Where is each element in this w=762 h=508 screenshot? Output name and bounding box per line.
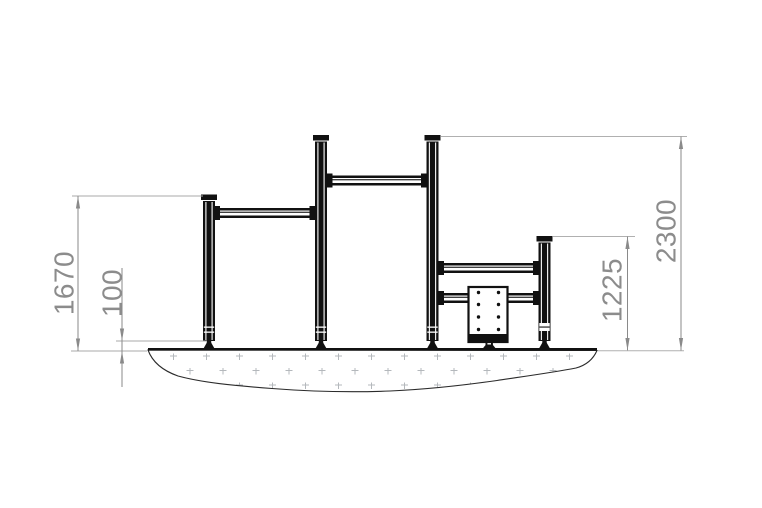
drawing-page: 1670 100 1225 2300 (0, 0, 762, 508)
panel-board (469, 287, 508, 342)
panel-dot (497, 303, 500, 306)
post-tube (315, 142, 327, 342)
post-joint (204, 327, 214, 328)
post-joint (427, 327, 437, 328)
post-tube-highlight (205, 202, 206, 340)
crossbar-low-left (209, 206, 321, 220)
post-1-left (201, 195, 217, 349)
arrowhead-down (625, 338, 629, 351)
post-joint (427, 332, 437, 333)
post-joint (204, 332, 214, 333)
bar-highlight (321, 180, 433, 183)
post-joint-line (539, 327, 549, 328)
arrowhead-up (679, 137, 683, 150)
ground-section (148, 348, 597, 392)
post-anchor (316, 342, 327, 349)
equipment-structure (201, 135, 553, 349)
bar-highlight (321, 178, 433, 179)
panel-dot (477, 291, 480, 294)
ground-section-blob (148, 350, 597, 392)
post-cap (425, 135, 441, 141)
post-tube-highlight (212, 202, 213, 340)
dimension-label: 1670 (49, 251, 80, 315)
panel-dot (497, 328, 500, 331)
bar-clamp (327, 174, 333, 188)
panel-dot (477, 328, 480, 331)
bar-clamp (533, 261, 539, 275)
dimension-label: 1225 (597, 258, 628, 322)
post-joint (316, 327, 326, 328)
crossbar-high (321, 174, 433, 188)
arrowhead-up (625, 237, 629, 250)
arrowhead-up (76, 196, 80, 209)
post-anchor (204, 342, 215, 349)
panel-dot (497, 315, 500, 318)
dimension-label: 100 (97, 269, 128, 317)
dimension-1225: 1225 (553, 237, 635, 351)
bar-highlight (209, 211, 321, 212)
bar-clamp (421, 174, 427, 188)
crossbar-right-upper (433, 261, 545, 275)
panel-dot (497, 291, 500, 294)
activity-panel (469, 287, 508, 349)
post-4-right (537, 236, 553, 349)
bar-clamp (439, 261, 445, 275)
post-tube (203, 201, 215, 341)
bar-highlight (433, 266, 545, 267)
elevation-drawing: 1670 100 1225 2300 (0, 0, 762, 508)
post-2-tall (313, 135, 329, 349)
post-tube-highlight (435, 143, 436, 341)
bar-clamp (439, 291, 445, 305)
post-joint (316, 332, 326, 333)
arrowhead-down (120, 329, 124, 342)
post-anchor (539, 342, 550, 349)
post-cap (537, 236, 553, 242)
bar-highlight (209, 213, 321, 216)
ground-surface-line (148, 348, 597, 351)
bar-clamp (533, 291, 539, 305)
panel-anchor (483, 345, 497, 349)
post-cap (201, 195, 217, 201)
bar-clamp (215, 206, 221, 220)
post-3-tall (425, 135, 441, 349)
panel-base-band (469, 334, 508, 342)
post-anchor (427, 342, 438, 349)
post-tube-highlight (317, 143, 318, 341)
panel-dot (477, 315, 480, 318)
bar-highlight (433, 268, 545, 271)
dimension-label: 2300 (651, 199, 682, 263)
post-tube-highlight (324, 143, 325, 341)
post-tube-highlight (429, 143, 430, 341)
arrowhead-up (120, 351, 124, 364)
panel-dot (477, 303, 480, 306)
arrowhead-down (679, 338, 683, 351)
arrowhead-down (76, 339, 80, 352)
post-cap (313, 135, 329, 141)
post-tube (427, 142, 439, 342)
bar-clamp (310, 206, 316, 220)
